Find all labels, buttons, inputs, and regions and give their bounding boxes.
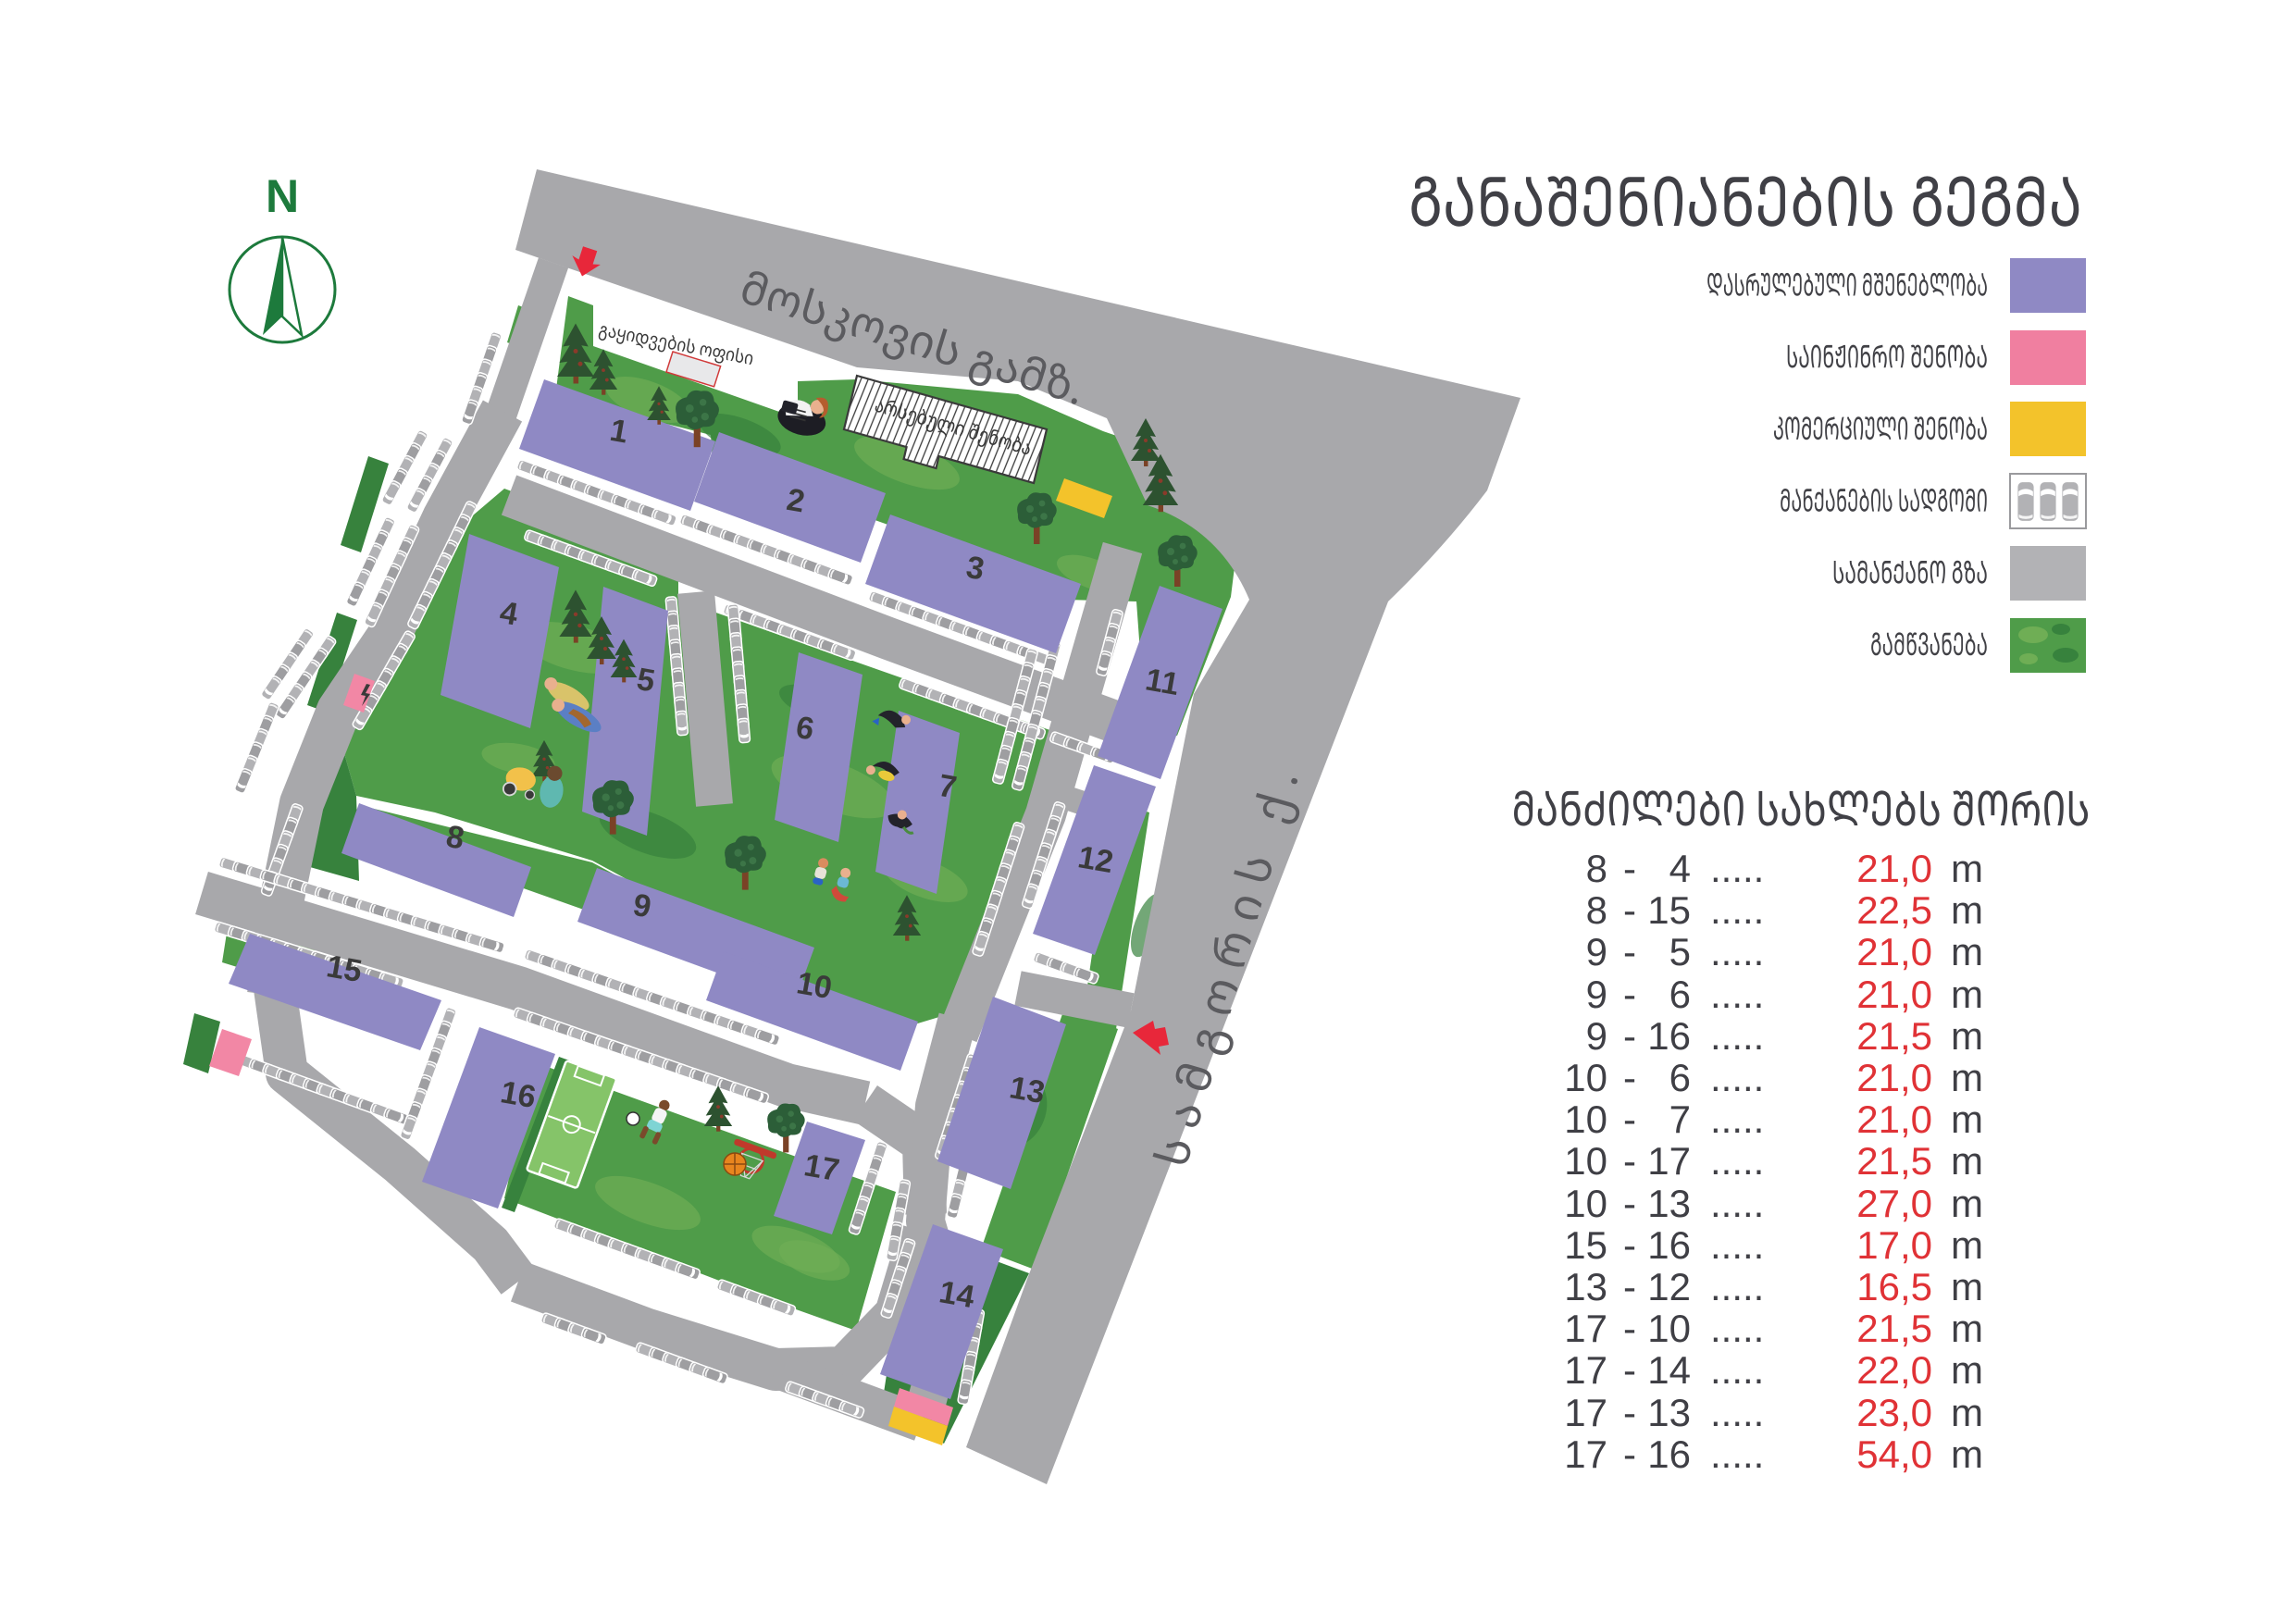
svg-text:4: 4 [1669, 847, 1691, 890]
svg-text:m: m [1951, 1056, 1983, 1099]
svg-text:-: - [1623, 1265, 1636, 1308]
svg-text:m: m [1951, 847, 1983, 890]
svg-text:.....: ..... [1710, 1223, 1764, 1267]
svg-text:13: 13 [1007, 1070, 1048, 1110]
svg-text:14: 14 [937, 1274, 977, 1315]
svg-text:-: - [1623, 1182, 1636, 1225]
svg-text:.....: ..... [1710, 888, 1764, 932]
svg-text:.....: ..... [1710, 1097, 1764, 1141]
svg-text:5: 5 [1669, 930, 1691, 973]
svg-text:8: 8 [1586, 847, 1607, 890]
svg-text:17,0: 17,0 [1856, 1223, 1932, 1267]
svg-text:23,0: 23,0 [1856, 1391, 1932, 1434]
svg-text:13: 13 [1647, 1182, 1691, 1225]
svg-text:-: - [1623, 1097, 1636, 1141]
svg-text:7: 7 [1669, 1097, 1691, 1141]
svg-text:.....: ..... [1710, 1432, 1764, 1476]
svg-text:21,5: 21,5 [1856, 1307, 1932, 1350]
svg-text:.....: ..... [1710, 1182, 1764, 1225]
svg-text:10: 10 [1564, 1097, 1607, 1141]
svg-text:27,0: 27,0 [1856, 1182, 1932, 1225]
svg-text:.....: ..... [1710, 973, 1764, 1016]
svg-text:21,0: 21,0 [1856, 930, 1932, 973]
svg-text:21,0: 21,0 [1856, 847, 1932, 890]
svg-text:6: 6 [1669, 1056, 1691, 1099]
svg-text:-: - [1623, 1223, 1636, 1267]
svg-text:m: m [1951, 930, 1983, 973]
svg-text:m: m [1951, 1182, 1983, 1225]
svg-text:9: 9 [1586, 1014, 1607, 1058]
svg-text:15: 15 [1564, 1223, 1607, 1267]
svg-text:-: - [1623, 1432, 1636, 1476]
svg-text:-: - [1623, 930, 1636, 973]
svg-text:16: 16 [1647, 1014, 1691, 1058]
svg-text:-: - [1623, 1014, 1636, 1058]
svg-text:12: 12 [1075, 839, 1116, 880]
svg-text:17: 17 [1564, 1432, 1607, 1476]
svg-text:m: m [1951, 973, 1983, 1016]
svg-text:.....: ..... [1710, 847, 1764, 890]
svg-text:m: m [1951, 1348, 1983, 1392]
svg-text:.....: ..... [1710, 1139, 1764, 1183]
svg-text:9: 9 [1586, 930, 1607, 973]
svg-text:16: 16 [498, 1074, 539, 1115]
svg-text:.....: ..... [1710, 1014, 1764, 1058]
svg-text:10: 10 [1647, 1307, 1691, 1350]
svg-text:10: 10 [1564, 1182, 1607, 1225]
svg-text:-: - [1623, 1056, 1636, 1099]
svg-text:9: 9 [1586, 973, 1607, 1016]
svg-text:21,0: 21,0 [1856, 1097, 1932, 1141]
svg-text:12: 12 [1647, 1265, 1691, 1308]
svg-text:15: 15 [1647, 888, 1691, 932]
svg-text:-: - [1623, 1307, 1636, 1350]
svg-text:-: - [1623, 888, 1636, 932]
svg-text:21,0: 21,0 [1856, 973, 1932, 1016]
svg-text:.....: ..... [1710, 1265, 1764, 1308]
svg-text:N: N [266, 170, 299, 222]
svg-text:m: m [1951, 1097, 1983, 1141]
svg-text:-: - [1623, 1139, 1636, 1183]
svg-text:22,5: 22,5 [1856, 888, 1932, 932]
svg-text:-: - [1623, 847, 1636, 890]
svg-text:6: 6 [1669, 973, 1691, 1016]
svg-text:14: 14 [1647, 1348, 1691, 1392]
svg-text:16: 16 [1647, 1223, 1691, 1267]
svg-text:17: 17 [1564, 1307, 1607, 1350]
svg-text:21,0: 21,0 [1856, 1056, 1932, 1099]
svg-text:-: - [1623, 1391, 1636, 1434]
svg-text:.....: ..... [1710, 930, 1764, 973]
svg-text:10: 10 [1564, 1139, 1607, 1183]
svg-text:m: m [1951, 1223, 1983, 1267]
svg-text:.....: ..... [1710, 1307, 1764, 1350]
svg-text:.....: ..... [1710, 1348, 1764, 1392]
svg-text:8: 8 [1586, 888, 1607, 932]
svg-text:17: 17 [1647, 1139, 1691, 1183]
svg-text:22,0: 22,0 [1856, 1348, 1932, 1392]
svg-text:m: m [1951, 1139, 1983, 1183]
svg-text:13: 13 [1647, 1391, 1691, 1434]
svg-text:m: m [1951, 1265, 1983, 1308]
svg-text:21,5: 21,5 [1856, 1139, 1932, 1183]
svg-text:m: m [1951, 888, 1983, 932]
svg-text:13: 13 [1564, 1265, 1607, 1308]
svg-text:11: 11 [1143, 662, 1182, 702]
svg-text:m: m [1951, 1432, 1983, 1476]
svg-text:16,5: 16,5 [1856, 1265, 1932, 1308]
svg-text:10: 10 [1564, 1056, 1607, 1099]
svg-text:54,0: 54,0 [1856, 1432, 1932, 1476]
svg-text:-: - [1623, 973, 1636, 1016]
svg-text:m: m [1951, 1307, 1983, 1350]
svg-text:-: - [1623, 1348, 1636, 1392]
svg-text:17: 17 [1564, 1348, 1607, 1392]
svg-text:.....: ..... [1710, 1056, 1764, 1099]
svg-text:17: 17 [1564, 1391, 1607, 1434]
svg-text:m: m [1951, 1014, 1983, 1058]
svg-text:21,5: 21,5 [1856, 1014, 1932, 1058]
svg-text:16: 16 [1647, 1432, 1691, 1476]
svg-text:m: m [1951, 1391, 1983, 1434]
svg-text:10: 10 [794, 965, 835, 1006]
svg-text:17: 17 [801, 1147, 842, 1188]
svg-text:.....: ..... [1710, 1391, 1764, 1434]
svg-text:15: 15 [324, 948, 365, 989]
